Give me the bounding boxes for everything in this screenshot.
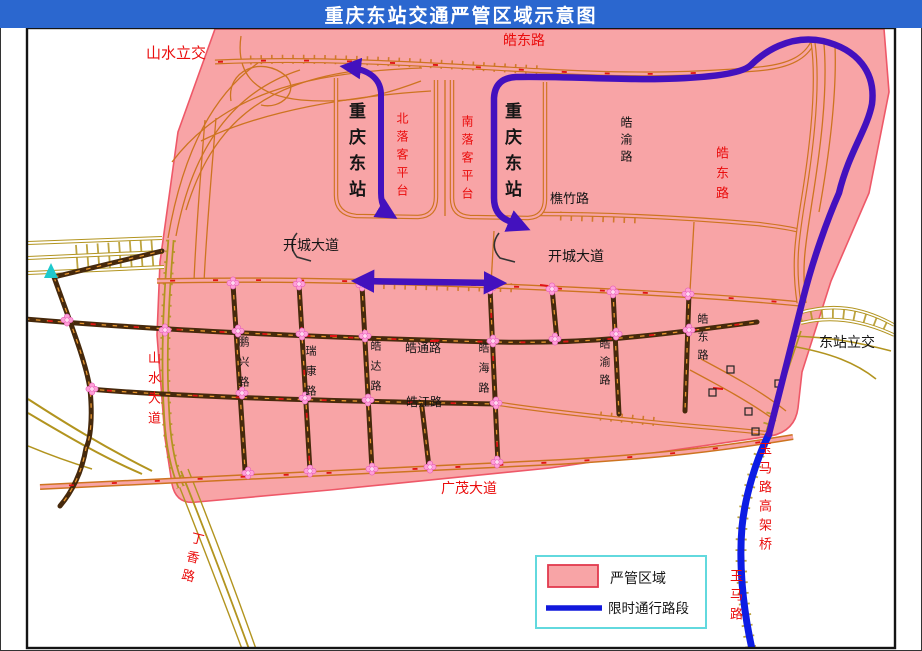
label-haotong-road: 皓通路 [405,342,441,354]
label-haodong-road-top: 皓东路 [503,34,545,48]
label-pengxing-road: 鹏兴路 [238,336,249,396]
route-kaicheng-two-way [359,281,499,283]
label-shanshui-avenue: 山水大道 [146,351,159,431]
title-bar: 重庆东站交通严管区域示意图 [0,0,922,28]
label-shanshui-interchange: 山水立交 [146,46,206,61]
label-haoyu-road-upper: 皓渝路 [620,116,632,167]
traffic-control-map: 严管区域 限时通行路段 重庆东站交通严管区域示意图 山水立交 皓东路 重庆东站 … [0,0,922,651]
label-qiaozhu-road: 樵竹路 [550,193,589,206]
label-ruikang-road: 瑞康路 [305,345,316,405]
label-kaicheng-avenue-west: 开城大道 [283,239,339,253]
label-station-east: 重庆东站 [502,102,519,206]
label-haoda-road: 皓达路 [370,340,381,400]
page-title: 重庆东站交通严管区域示意图 [324,1,597,28]
label-dongzhan-interchange: 东站立交 [819,336,875,350]
label-yuma-viaduct: 玉马路高架桥 [757,442,770,556]
label-haohai-road: 皓海路 [478,342,489,402]
strict-control-zone [157,29,889,502]
legend-area-label: 严管区域 [610,571,666,587]
label-south-platform: 南落客平台 [461,115,473,205]
map-canvas: 严管区域 限时通行路段 [0,0,922,651]
label-north-platform: 北落客平台 [396,112,408,202]
label-yuma-road: 玉马路 [728,569,741,626]
label-kaicheng-avenue-east: 开城大道 [548,250,604,264]
legend-line-label: 限时通行路段 [608,601,689,617]
label-guangmao-avenue: 广茂大道 [441,482,497,496]
label-haodong-road-east: 皓东路 [714,146,727,206]
label-haojiang-road: 皓江路 [406,396,442,408]
label-haodong-road-lower: 皓东路 [697,313,708,367]
legend-area-swatch [548,565,598,587]
legend: 严管区域 限时通行路段 [536,556,706,628]
label-haoyu-road-lower: 皓渝路 [599,338,610,392]
label-station-west: 重庆东站 [346,102,363,206]
